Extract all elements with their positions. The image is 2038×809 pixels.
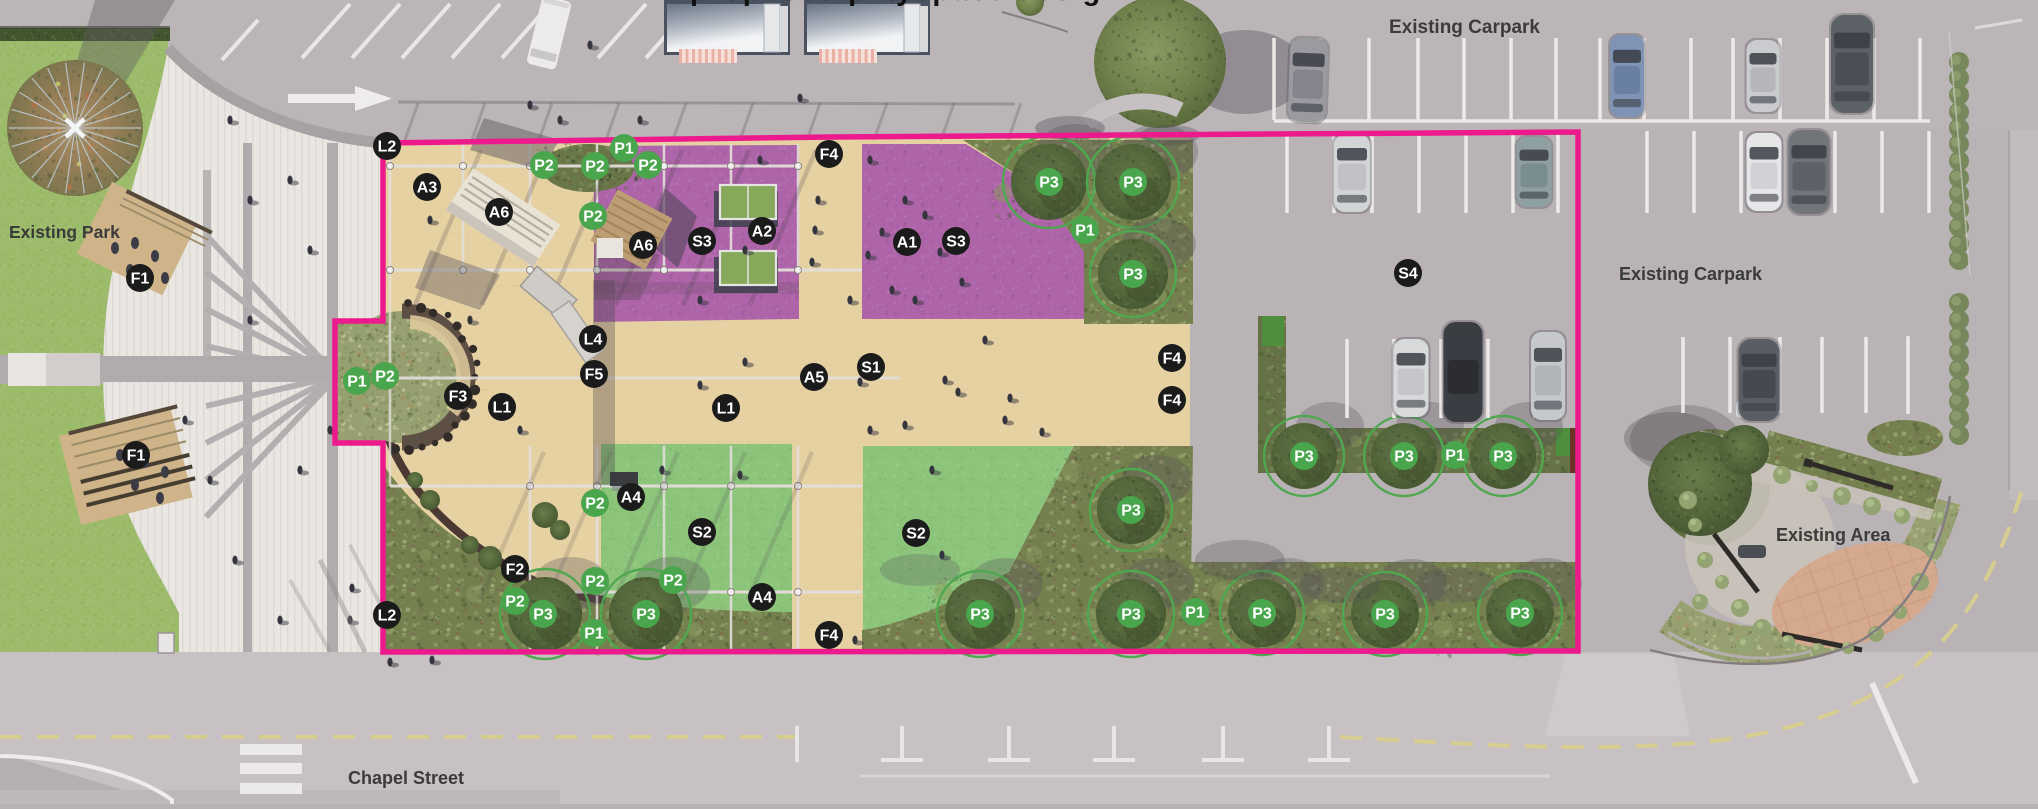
svg-text:F4: F4: [820, 147, 839, 164]
svg-text:P3: P3: [636, 607, 656, 624]
svg-text:F1: F1: [127, 448, 146, 465]
svg-text:P3: P3: [1375, 607, 1395, 624]
svg-text:S2: S2: [906, 526, 926, 543]
svg-text:L2: L2: [378, 139, 397, 156]
svg-text:A4: A4: [752, 590, 773, 607]
svg-text:P2: P2: [534, 158, 554, 175]
svg-text:S2: S2: [692, 525, 712, 542]
svg-text:A2: A2: [752, 224, 773, 241]
svg-text:P2: P2: [375, 369, 395, 386]
svg-text:L4: L4: [584, 332, 603, 349]
svg-text:P3: P3: [970, 607, 990, 624]
svg-text:P3: P3: [1252, 606, 1272, 623]
svg-text:P3: P3: [1294, 449, 1314, 466]
svg-text:P2: P2: [505, 594, 525, 611]
svg-text:F4: F4: [1163, 351, 1182, 368]
svg-text:P1: P1: [614, 141, 634, 158]
svg-text:P1: P1: [1075, 223, 1095, 240]
svg-text:P2: P2: [638, 158, 658, 175]
svg-text:P3: P3: [1394, 449, 1414, 466]
svg-text:P3: P3: [1123, 267, 1143, 284]
svg-text:S4: S4: [1398, 266, 1418, 283]
svg-text:P3: P3: [1510, 606, 1530, 623]
svg-text:proposed playspace design: proposed playspace design: [690, 0, 1122, 7]
svg-text:S3: S3: [692, 234, 712, 251]
svg-text:A6: A6: [489, 205, 510, 222]
svg-text:A1: A1: [897, 235, 918, 252]
svg-text:P2: P2: [663, 573, 683, 590]
svg-text:P2: P2: [585, 496, 605, 513]
svg-text:A3: A3: [417, 180, 438, 197]
svg-text:P2: P2: [585, 159, 605, 176]
svg-text:P1: P1: [1185, 605, 1205, 622]
svg-text:P3: P3: [1121, 503, 1141, 520]
svg-text:P2: P2: [583, 209, 603, 226]
svg-text:A6: A6: [633, 238, 654, 255]
svg-text:A4: A4: [621, 490, 642, 507]
svg-text:Existing Carpark: Existing Carpark: [1619, 264, 1763, 284]
svg-text:Existing Area: Existing Area: [1776, 525, 1891, 545]
svg-text:L2: L2: [378, 608, 397, 625]
svg-text:S3: S3: [946, 234, 966, 251]
svg-text:F5: F5: [585, 367, 604, 384]
svg-text:F2: F2: [506, 562, 525, 579]
svg-text:F3: F3: [449, 389, 468, 406]
svg-text:Existing Park: Existing Park: [9, 222, 120, 242]
svg-text:A5: A5: [804, 370, 825, 387]
svg-text:P3: P3: [1493, 449, 1513, 466]
svg-text:L1: L1: [717, 401, 736, 418]
svg-text:F4: F4: [1163, 393, 1182, 410]
svg-text:P3: P3: [533, 607, 553, 624]
svg-text:P1: P1: [1445, 448, 1465, 465]
svg-text:L1: L1: [493, 400, 512, 417]
svg-text:P2: P2: [585, 574, 605, 591]
svg-text:P3: P3: [1121, 607, 1141, 624]
svg-text:Existing Carpark: Existing Carpark: [1389, 17, 1540, 38]
svg-text:F1: F1: [131, 271, 150, 288]
svg-text:F4: F4: [820, 628, 839, 645]
svg-text:Chapel Street: Chapel Street: [348, 768, 464, 788]
svg-text:P1: P1: [584, 626, 604, 643]
svg-text:P1: P1: [347, 374, 367, 391]
svg-text:P3: P3: [1123, 175, 1143, 192]
svg-text:S1: S1: [861, 360, 881, 377]
svg-text:P3: P3: [1039, 175, 1059, 192]
